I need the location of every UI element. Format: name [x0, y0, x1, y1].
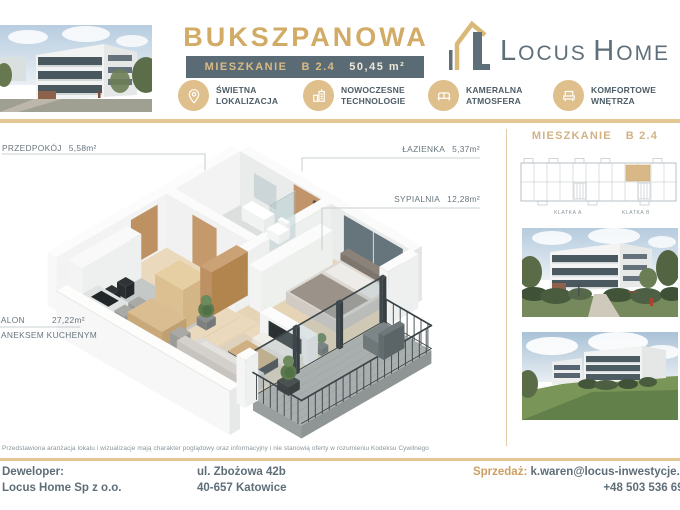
brochure-page: BUKSZPANOWA MIESZKANIE B 2.4 50,45 m² LO…	[0, 0, 680, 510]
room-area: 5,37m²	[452, 144, 480, 154]
room-name: PRZEDPOKÓJ	[2, 143, 62, 153]
room-label-sypialnia: SYPIALNIA12,28m²	[330, 194, 480, 204]
room-area: 12,28m²	[447, 194, 480, 204]
room-name: SYPIALNIA	[394, 194, 440, 204]
room-label-salon: SALON	[0, 315, 25, 325]
room-label-salon-line2: ANEKSEM KUCHENYM	[1, 330, 97, 340]
room-area: 5,58m²	[69, 143, 97, 153]
room-area: 27,22m²	[52, 315, 85, 325]
floorplan-3d-render	[0, 0, 680, 510]
room-label-salon-area: 27,22m²	[52, 315, 85, 325]
room-label-lazienka: ŁAZIENKA5,37m²	[330, 144, 480, 154]
room-name: ANEKSEM KUCHENYM	[1, 330, 97, 340]
room-name: ŁAZIENKA	[402, 144, 445, 154]
room-name: SALON	[0, 315, 25, 325]
room-label-przedpokoj: PRZEDPOKÓJ5,58m²	[2, 143, 97, 153]
